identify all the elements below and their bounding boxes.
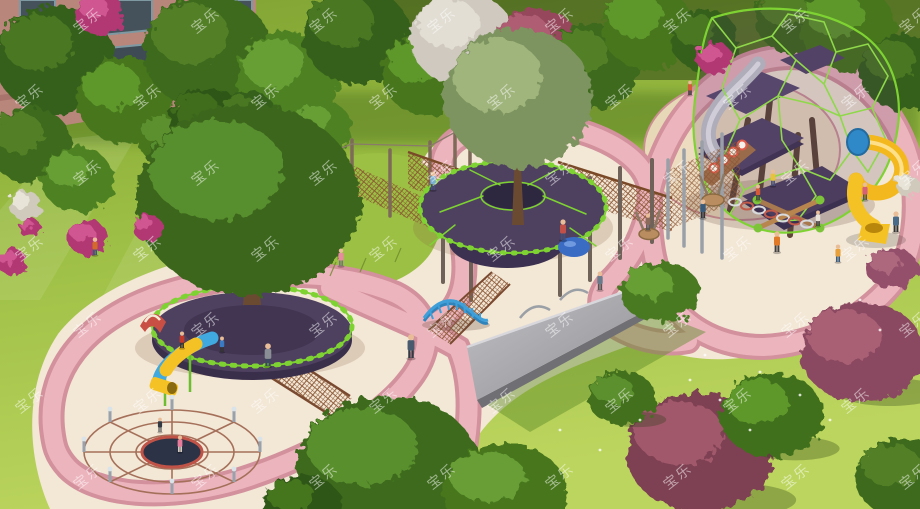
tree bbox=[866, 248, 918, 288]
tree bbox=[9, 191, 41, 220]
tree bbox=[136, 104, 360, 296]
tree bbox=[68, 220, 108, 256]
tree bbox=[696, 42, 732, 74]
playground-rendering: 宝乐宝乐宝乐宝乐宝乐宝乐宝乐宝乐宝乐宝乐宝乐宝乐宝乐宝乐宝乐宝乐宝乐宝乐宝乐宝乐… bbox=[0, 0, 920, 509]
tree bbox=[444, 28, 592, 168]
